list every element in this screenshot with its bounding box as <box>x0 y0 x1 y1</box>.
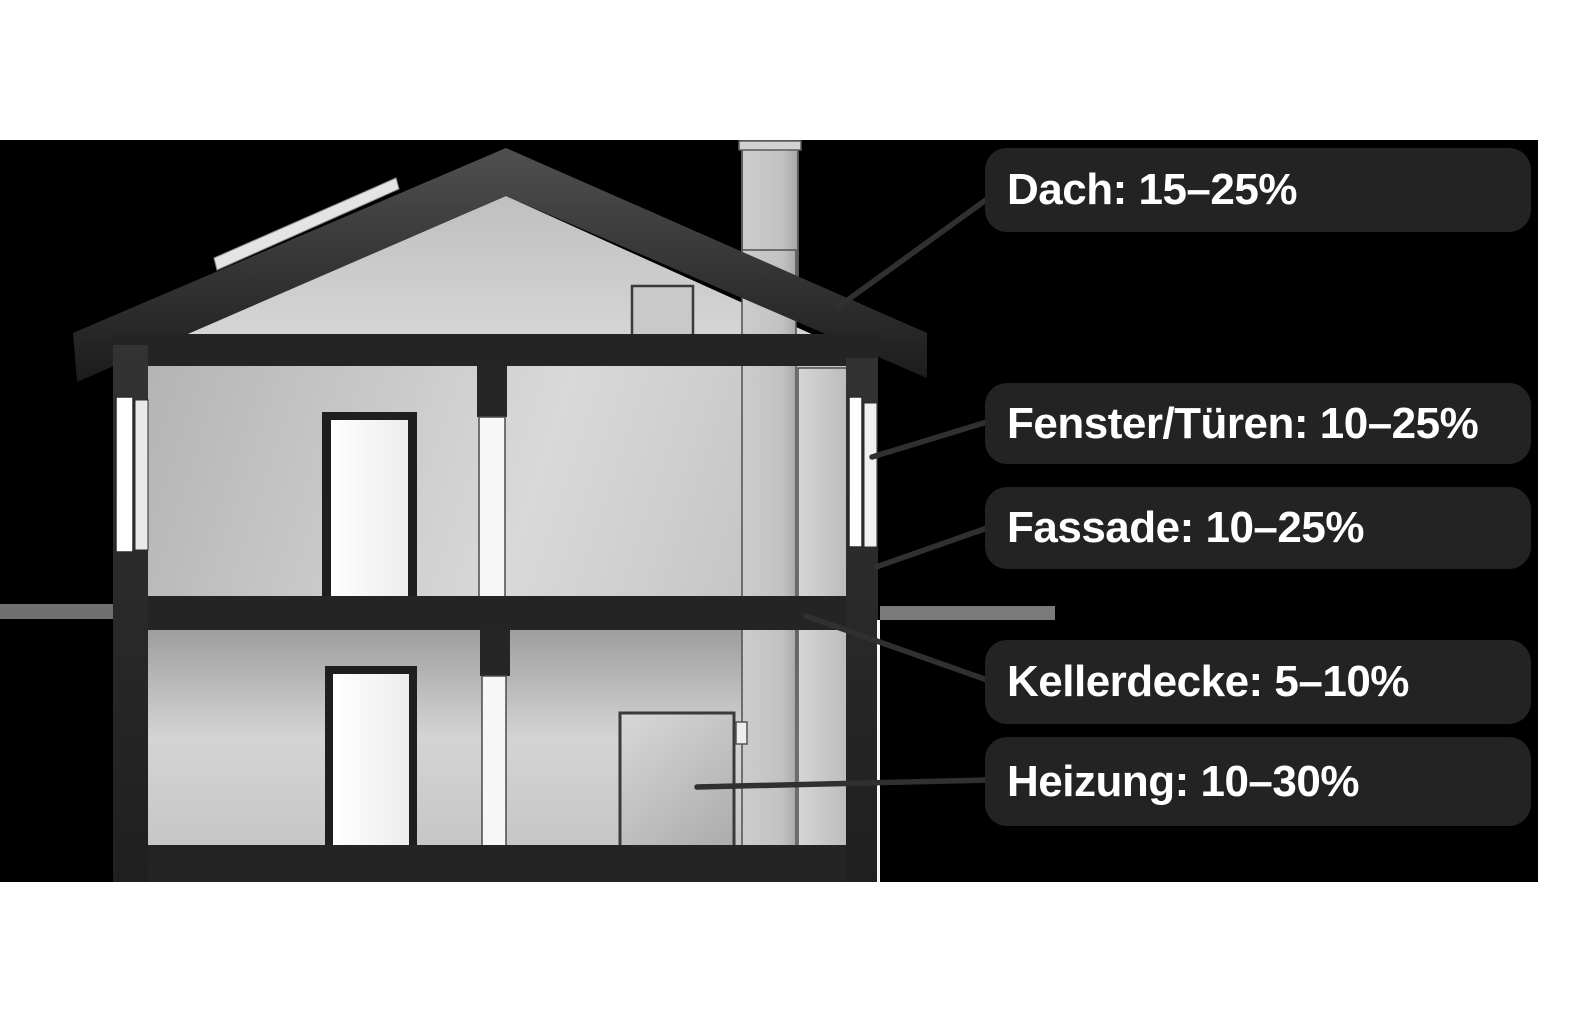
label-kellerdecke-text: Kellerdecke: 5–10% <box>1007 657 1409 707</box>
ground-line-left <box>0 604 113 619</box>
foundation-edge-line <box>877 620 880 882</box>
label-fassade-text: Fassade: 10–25% <box>1007 503 1364 553</box>
leader-line-fenster <box>872 421 990 457</box>
label-dach-text: Dach: 15–25% <box>1007 165 1297 215</box>
upper-floor-door <box>322 412 417 598</box>
foundation-slab <box>113 845 878 882</box>
attic-box <box>632 286 693 336</box>
chimney-cap <box>739 141 801 150</box>
heating-pipe <box>736 722 747 744</box>
lower-floor-door <box>325 666 417 848</box>
label-heizung: Heizung: 10–30% <box>985 737 1531 826</box>
label-kellerdecke: Kellerdecke: 5–10% <box>985 640 1531 724</box>
left-wall-window <box>116 397 148 552</box>
label-fenster-tueren: Fenster/Türen: 10–25% <box>985 383 1531 464</box>
ground-line-right <box>880 606 1055 620</box>
label-heizung-text: Heizung: 10–30% <box>1007 757 1359 807</box>
leader-line-fassade <box>876 527 990 567</box>
infographic-canvas: Dach: 15–25% Fenster/Türen: 10–25% Fassa… <box>0 0 1571 1013</box>
attic-ceiling-slab <box>113 334 878 366</box>
label-fassade: Fassade: 10–25% <box>985 487 1531 569</box>
label-fenster-tueren-text: Fenster/Türen: 10–25% <box>1007 399 1478 449</box>
label-dach: Dach: 15–25% <box>985 148 1531 232</box>
heating-unit <box>620 713 747 848</box>
basement-ceiling-slab <box>113 596 878 630</box>
leader-line-dach <box>838 197 990 307</box>
